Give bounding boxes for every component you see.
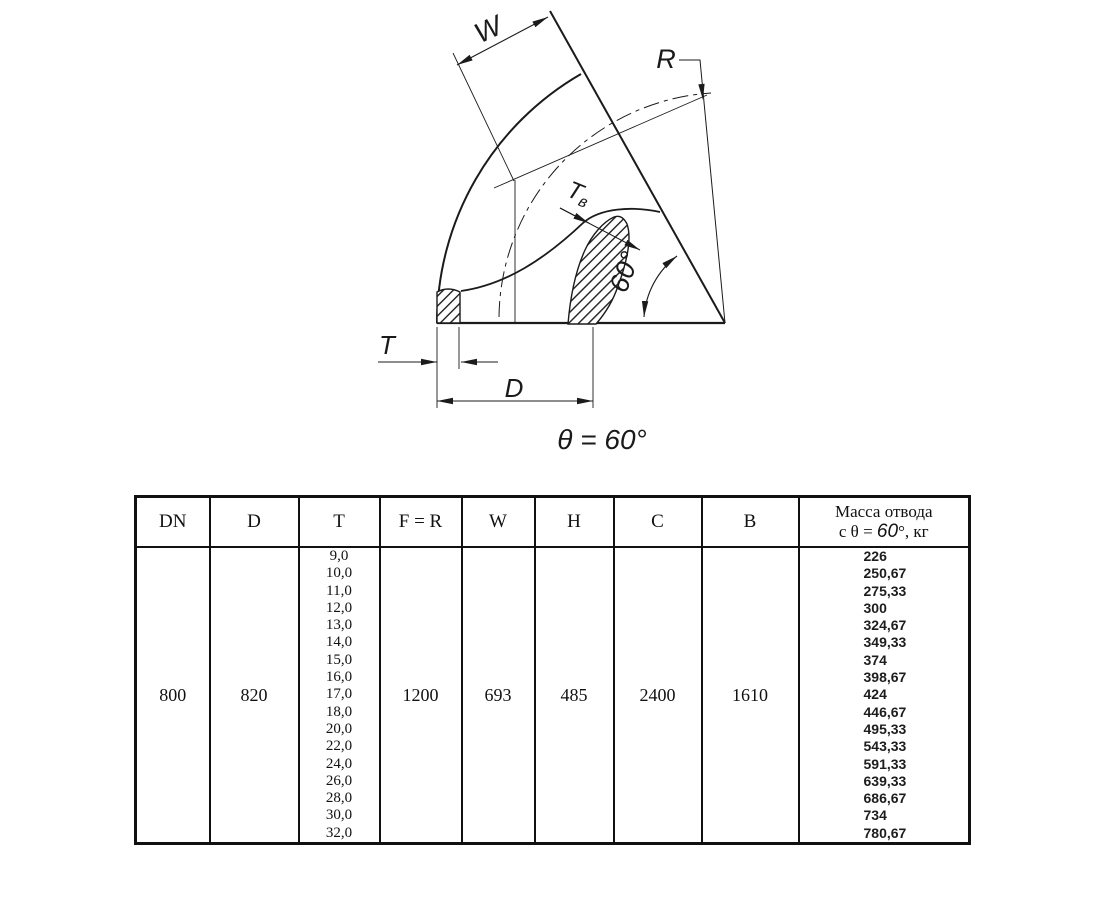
header-mass: Масса отвода с θ = 60°, кг	[799, 497, 970, 548]
list-value: 32,0	[300, 825, 379, 842]
outer-arc	[437, 74, 581, 323]
header-t: T	[299, 497, 380, 548]
list-value: 543,33	[800, 738, 969, 755]
list-value: 11,0	[300, 583, 379, 600]
list-value: 324,67	[800, 617, 969, 634]
list-value: 349,33	[800, 634, 969, 651]
label-w: W	[469, 9, 508, 49]
list-value: 13,0	[300, 617, 379, 634]
label-tv: Tв	[562, 176, 594, 212]
cell-w: 693	[462, 547, 535, 844]
list-value: 275,33	[800, 583, 969, 600]
list-value: 17,0	[300, 686, 379, 703]
list-value: 591,33	[800, 756, 969, 773]
list-value: 780,67	[800, 825, 969, 842]
cell-dn: 800	[136, 547, 210, 844]
header-c: C	[614, 497, 702, 548]
list-value: 226	[800, 548, 969, 565]
list-value: 22,0	[300, 738, 379, 755]
header-fr: F = R	[380, 497, 462, 548]
cell-d: 820	[210, 547, 299, 844]
cell-fr: 1200	[380, 547, 462, 844]
dimensions-table: DN D T F = R W H C B Масса отвода с θ = …	[134, 495, 971, 845]
list-value: 10,0	[300, 565, 379, 582]
drawing-caption-theta: θ = 60°	[557, 424, 646, 455]
label-r: R	[656, 44, 676, 74]
top-end-axis-line	[494, 95, 707, 188]
list-value: 15,0	[300, 652, 379, 669]
cell-t-values: 9,010,011,012,013,014,015,016,017,018,02…	[299, 547, 380, 844]
list-value: 686,67	[800, 790, 969, 807]
elbow-technical-drawing: R W Tв 60° T D θ = 60°	[0, 0, 1100, 478]
angle-arc	[644, 256, 677, 317]
header-b: B	[702, 497, 799, 548]
tv-leader-mid-arrow	[560, 208, 589, 223]
page: R W Tв 60° T D θ = 60° D	[0, 0, 1100, 900]
table-header-row: DN D T F = R W H C B Масса отвода с θ = …	[136, 497, 970, 548]
list-value: 424	[800, 686, 969, 703]
list-value: 398,67	[800, 669, 969, 686]
list-value: 734	[800, 807, 969, 824]
label-d: D	[505, 373, 524, 403]
cell-c: 2400	[614, 547, 702, 844]
label-t: T	[379, 330, 397, 360]
list-value: 18,0	[300, 704, 379, 721]
header-d: D	[210, 497, 299, 548]
header-w: W	[462, 497, 535, 548]
header-mass-line1: Масса отвода	[800, 502, 969, 522]
header-mass-line2: с θ = 60°, кг	[800, 522, 969, 542]
list-value: 20,0	[300, 721, 379, 738]
list-value: 16,0	[300, 669, 379, 686]
list-value: 300	[800, 600, 969, 617]
list-value: 495,33	[800, 721, 969, 738]
cell-b: 1610	[702, 547, 799, 844]
list-value: 639,33	[800, 773, 969, 790]
t-extension-lines	[437, 327, 459, 408]
list-value: 26,0	[300, 773, 379, 790]
header-dn: DN	[136, 497, 210, 548]
list-value: 12,0	[300, 600, 379, 617]
list-value: 24,0	[300, 756, 379, 773]
outer-wall-section-hatch	[437, 289, 460, 323]
cell-mass-values: 226250,67275,33300324,67349,33374398,674…	[799, 547, 970, 844]
list-value: 250,67	[800, 565, 969, 582]
list-value: 446,67	[800, 704, 969, 721]
list-value: 374	[800, 652, 969, 669]
list-value: 9,0	[300, 548, 379, 565]
cell-h: 485	[535, 547, 614, 844]
header-h: H	[535, 497, 614, 548]
table-data-row: 800 820 9,010,011,012,013,014,015,016,01…	[136, 547, 970, 844]
list-value: 28,0	[300, 790, 379, 807]
list-value: 14,0	[300, 634, 379, 651]
list-value: 30,0	[300, 807, 379, 824]
w-extension-line	[453, 53, 514, 181]
